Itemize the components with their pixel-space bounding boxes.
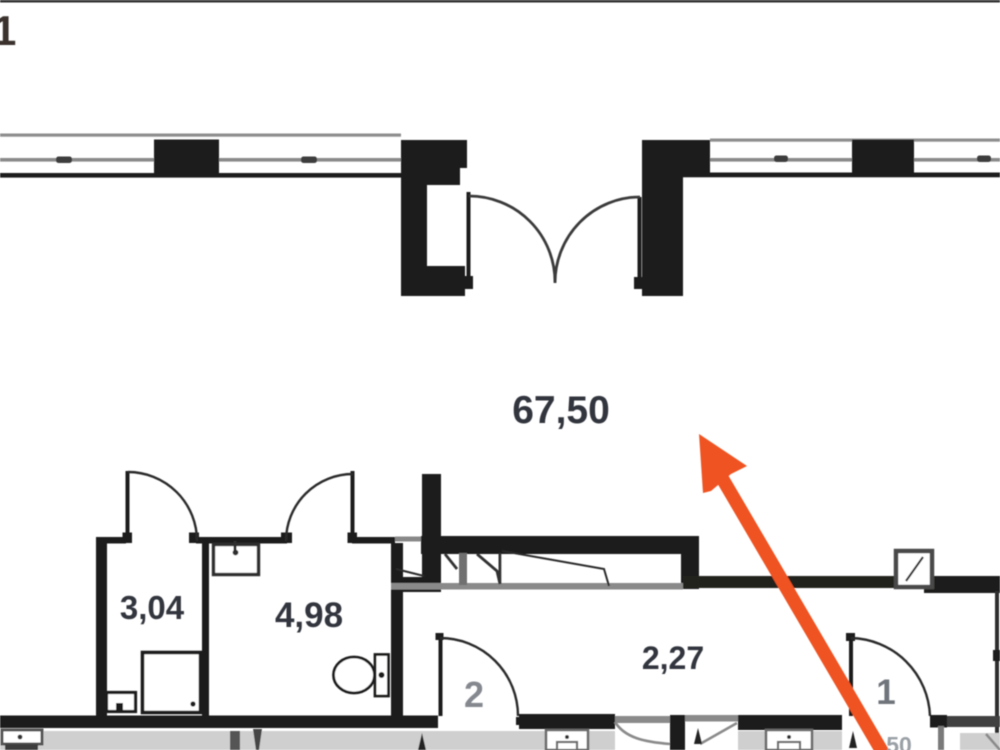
svg-text:67,50: 67,50 — [512, 389, 610, 432]
svg-text:1: 1 — [876, 673, 895, 712]
svg-text:3,04: 3,04 — [120, 589, 185, 626]
svg-text:2: 2 — [464, 674, 484, 715]
svg-text:4,98: 4,98 — [275, 596, 343, 635]
svg-text:2,27: 2,27 — [642, 640, 704, 676]
svg-text:50: 50 — [886, 732, 912, 750]
svg-text:1: 1 — [0, 7, 16, 54]
